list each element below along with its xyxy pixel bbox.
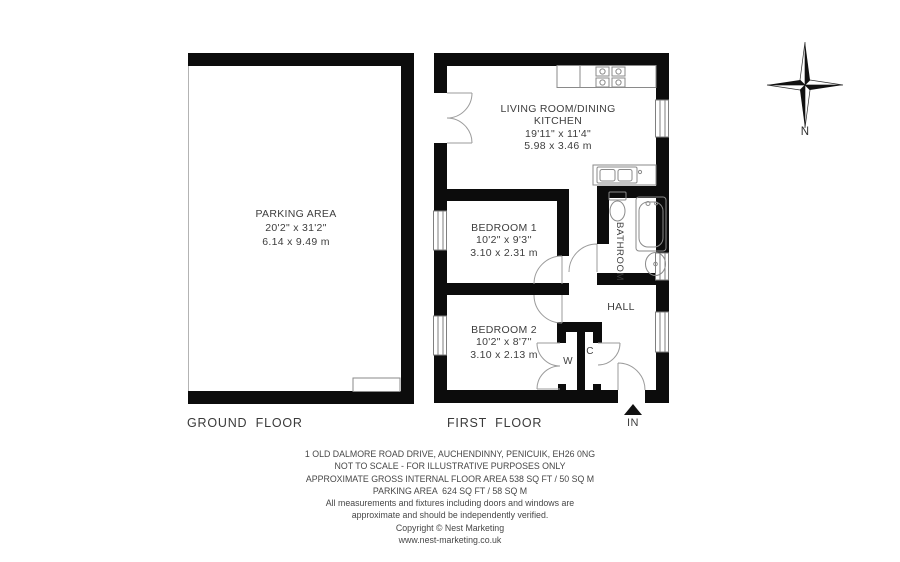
room-name: BEDROOM 2 — [470, 324, 538, 336]
footer-parking-area-line: PARKING AREA 624 SQ FT / 58 SQ M — [0, 485, 900, 497]
entrance-door-arc — [618, 363, 645, 390]
footer-copyright-line: Copyright © Nest Marketing — [0, 522, 900, 534]
compass-icon — [767, 42, 843, 128]
footer-scale-line: NOT TO SCALE - FOR ILLUSTRATIVE PURPOSES… — [0, 460, 900, 472]
bedroom2-door-arc — [534, 295, 562, 323]
room-name: KITCHEN — [500, 115, 615, 127]
room-dim-metric: 3.10 x 2.13 m — [470, 349, 538, 361]
wardrobe-label: W — [563, 356, 573, 367]
window — [434, 316, 447, 355]
footer-website-line: www.nest-marketing.co.uk — [0, 534, 900, 546]
room-dim-imperial: 19'11" x 11'4" — [500, 128, 615, 140]
toilet-icon — [609, 192, 626, 221]
bathroom-door-arc — [569, 244, 597, 272]
room-dim-metric: 6.14 x 9.49 m — [255, 235, 336, 249]
room-name: PARKING AREA — [255, 207, 336, 221]
room-dim-imperial: 10'2" x 9'3'' — [470, 234, 538, 246]
hall-label: HALL — [607, 301, 634, 313]
bedroom1-door-arc — [534, 256, 562, 284]
window — [656, 253, 669, 280]
room-name: LIVING ROOM/DINING — [500, 103, 615, 115]
ground-floor-title: GROUND FLOOR — [187, 416, 303, 430]
footer-disclaimer: 1 OLD DALMORE ROAD DRIVE, AUCHENDINNY, P… — [0, 448, 900, 546]
bedroom1-label: BEDROOM 1 10'2" x 9'3'' 3.10 x 2.31 m — [470, 222, 538, 259]
footer-disclaimer-line: All measurements and fixtures including … — [0, 497, 900, 509]
footer-floor-area-line: APPROXIMATE GROSS INTERNAL FLOOR AREA 53… — [0, 473, 900, 485]
window — [656, 312, 669, 352]
room-dim-metric: 5.98 x 3.46 m — [500, 140, 615, 152]
parking-area-label: PARKING AREA 20'2" x 31'2" 6.14 x 9.49 m — [255, 207, 336, 249]
floorplan-page: PARKING AREA 20'2" x 31'2" 6.14 x 9.49 m… — [0, 0, 900, 562]
compass-north-label: N — [801, 126, 810, 138]
footer-disclaimer-line: approximate and should be independently … — [0, 509, 900, 521]
room-dim-imperial: 20'2" x 31'2" — [255, 221, 336, 235]
cupboard-door-arc — [598, 343, 620, 365]
wardrobe-door-arcs — [537, 343, 560, 389]
window — [656, 100, 669, 137]
sink-counter — [593, 165, 656, 185]
french-door-arc — [447, 93, 472, 143]
entrance-label: IN — [627, 417, 639, 429]
parking-notch — [353, 378, 400, 392]
bathtub-icon — [636, 197, 666, 251]
room-dim-metric: 3.10 x 2.31 m — [470, 247, 538, 259]
living-room-label: LIVING ROOM/DINING KITCHEN 19'11" x 11'4… — [500, 103, 615, 153]
footer-address-line: 1 OLD DALMORE ROAD DRIVE, AUCHENDINNY, P… — [0, 448, 900, 460]
window — [434, 211, 447, 250]
entrance-arrow-icon — [624, 404, 642, 415]
sink-icon — [597, 167, 642, 183]
first-floor-title: FIRST FLOOR — [447, 416, 542, 430]
bathroom-label: BATHROOM — [614, 221, 625, 281]
bedroom2-label: BEDROOM 2 10'2" x 8'7'' 3.10 x 2.13 m — [470, 324, 538, 361]
room-dim-imperial: 10'2" x 8'7'' — [470, 336, 538, 348]
hob-icon — [596, 67, 625, 87]
room-name: BEDROOM 1 — [470, 222, 538, 234]
cupboard-label: C — [586, 346, 594, 357]
